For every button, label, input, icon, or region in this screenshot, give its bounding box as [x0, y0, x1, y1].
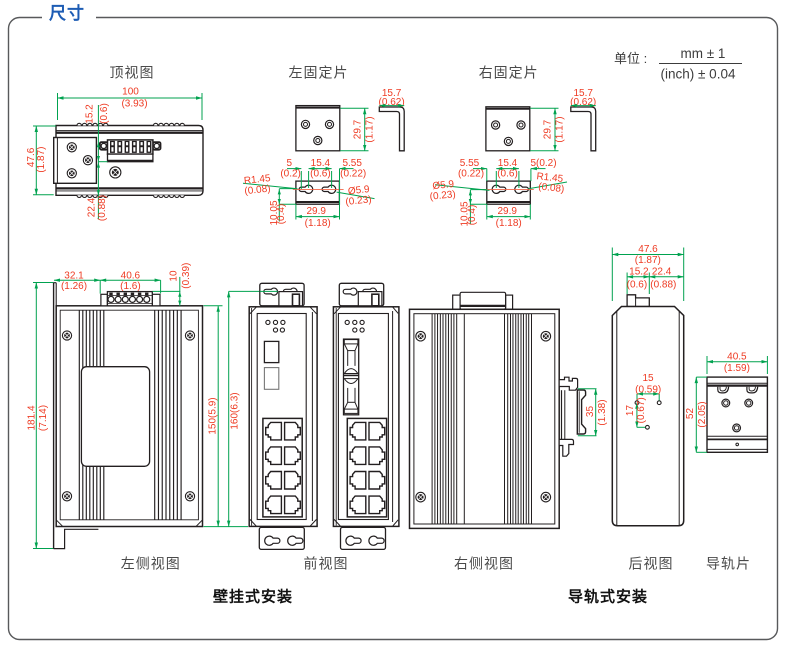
- svg-text:(0.62): (0.62): [379, 97, 405, 108]
- svg-text:(1.17): (1.17): [364, 116, 375, 142]
- svg-text:(0.4): (0.4): [467, 205, 478, 226]
- svg-text:(7.14): (7.14): [38, 405, 49, 431]
- svg-text:15.2: 15.2: [629, 266, 649, 277]
- svg-text:(0.6): (0.6): [310, 169, 331, 180]
- svg-text:(1.38): (1.38): [597, 399, 608, 425]
- svg-text:左侧视图: 左侧视图: [121, 556, 181, 572]
- svg-text:壁挂式安装: 壁挂式安装: [213, 588, 293, 606]
- svg-text:(2.05): (2.05): [697, 401, 708, 427]
- svg-text:5.55: 5.55: [342, 158, 362, 169]
- svg-text:29.7: 29.7: [543, 119, 554, 139]
- svg-text:(1.6): (1.6): [120, 281, 141, 292]
- svg-text:181.4: 181.4: [26, 405, 37, 430]
- svg-text:(1.59): (1.59): [724, 363, 750, 374]
- svg-text:(0.6): (0.6): [627, 279, 648, 290]
- svg-text:(0.23): (0.23): [345, 194, 372, 208]
- svg-text:(0.88): (0.88): [650, 279, 676, 290]
- svg-text:17: 17: [625, 405, 636, 417]
- svg-text:22.4: 22.4: [652, 266, 672, 277]
- svg-text:尺寸: 尺寸: [49, 3, 85, 23]
- svg-text:5: 5: [287, 158, 293, 169]
- svg-text:15.2: 15.2: [85, 104, 96, 124]
- svg-text:15.4: 15.4: [498, 158, 518, 169]
- svg-text:(0.4): (0.4): [276, 204, 287, 225]
- svg-text:(0.08): (0.08): [244, 183, 271, 197]
- svg-text:导轨片: 导轨片: [706, 556, 751, 572]
- svg-text:右侧视图: 右侧视图: [454, 556, 514, 572]
- svg-text:(1.18): (1.18): [496, 218, 522, 229]
- svg-text:(0.22): (0.22): [340, 169, 366, 180]
- svg-text:15: 15: [642, 373, 654, 384]
- svg-text:(1.18): (1.18): [305, 218, 331, 229]
- svg-text:mm ± 1: mm ± 1: [681, 46, 726, 61]
- svg-text:(1.26): (1.26): [61, 281, 87, 292]
- svg-text:40.6: 40.6: [121, 271, 141, 282]
- svg-text:160(6.3): 160(6.3): [229, 392, 240, 429]
- svg-text:(0.6): (0.6): [99, 103, 110, 124]
- svg-text:左固定片: 左固定片: [289, 65, 349, 81]
- svg-text:29.9: 29.9: [497, 206, 517, 217]
- svg-text:5.55: 5.55: [460, 158, 480, 169]
- svg-text:5(0.2): 5(0.2): [530, 158, 556, 169]
- svg-text:(0.67): (0.67): [636, 397, 647, 423]
- svg-text:22.4: 22.4: [87, 197, 98, 217]
- svg-text:(1.87): (1.87): [36, 147, 47, 173]
- svg-text:32.1: 32.1: [64, 271, 84, 282]
- svg-text:(0.23): (0.23): [429, 189, 456, 203]
- svg-text:(0.59): (0.59): [635, 384, 661, 395]
- svg-text:40.5: 40.5: [727, 351, 747, 362]
- svg-text:(0.2): (0.2): [280, 169, 301, 180]
- svg-text:右固定片: 右固定片: [479, 65, 539, 81]
- svg-text:(0.22): (0.22): [458, 169, 484, 180]
- svg-text:(0.6): (0.6): [497, 169, 518, 180]
- svg-text:(1.87): (1.87): [635, 255, 661, 266]
- svg-text:52: 52: [685, 408, 696, 420]
- svg-text:顶视图: 顶视图: [110, 65, 155, 81]
- svg-text:(1.17): (1.17): [555, 116, 566, 142]
- svg-text:前视图: 前视图: [304, 556, 349, 572]
- svg-text:(inch) ± 0.04: (inch) ± 0.04: [661, 67, 736, 82]
- svg-text:29.9: 29.9: [306, 206, 326, 217]
- svg-text:(0.39): (0.39): [181, 263, 192, 289]
- svg-text:47.6: 47.6: [638, 244, 658, 255]
- svg-text:(0.08): (0.08): [538, 181, 565, 195]
- svg-text:(3.93): (3.93): [121, 99, 147, 110]
- svg-text:(0.88): (0.88): [97, 195, 108, 221]
- svg-text:(0.62): (0.62): [570, 97, 596, 108]
- svg-text:29.7: 29.7: [352, 119, 363, 139]
- svg-text:35: 35: [585, 406, 596, 418]
- svg-text:单位 :: 单位 :: [614, 51, 647, 66]
- svg-text:100: 100: [122, 87, 139, 98]
- svg-text:后视图: 后视图: [629, 556, 674, 572]
- svg-text:10: 10: [168, 270, 179, 282]
- svg-text:150(5.9): 150(5.9): [208, 397, 219, 434]
- svg-text:15.4: 15.4: [311, 158, 331, 169]
- svg-text:导轨式安装: 导轨式安装: [568, 588, 648, 606]
